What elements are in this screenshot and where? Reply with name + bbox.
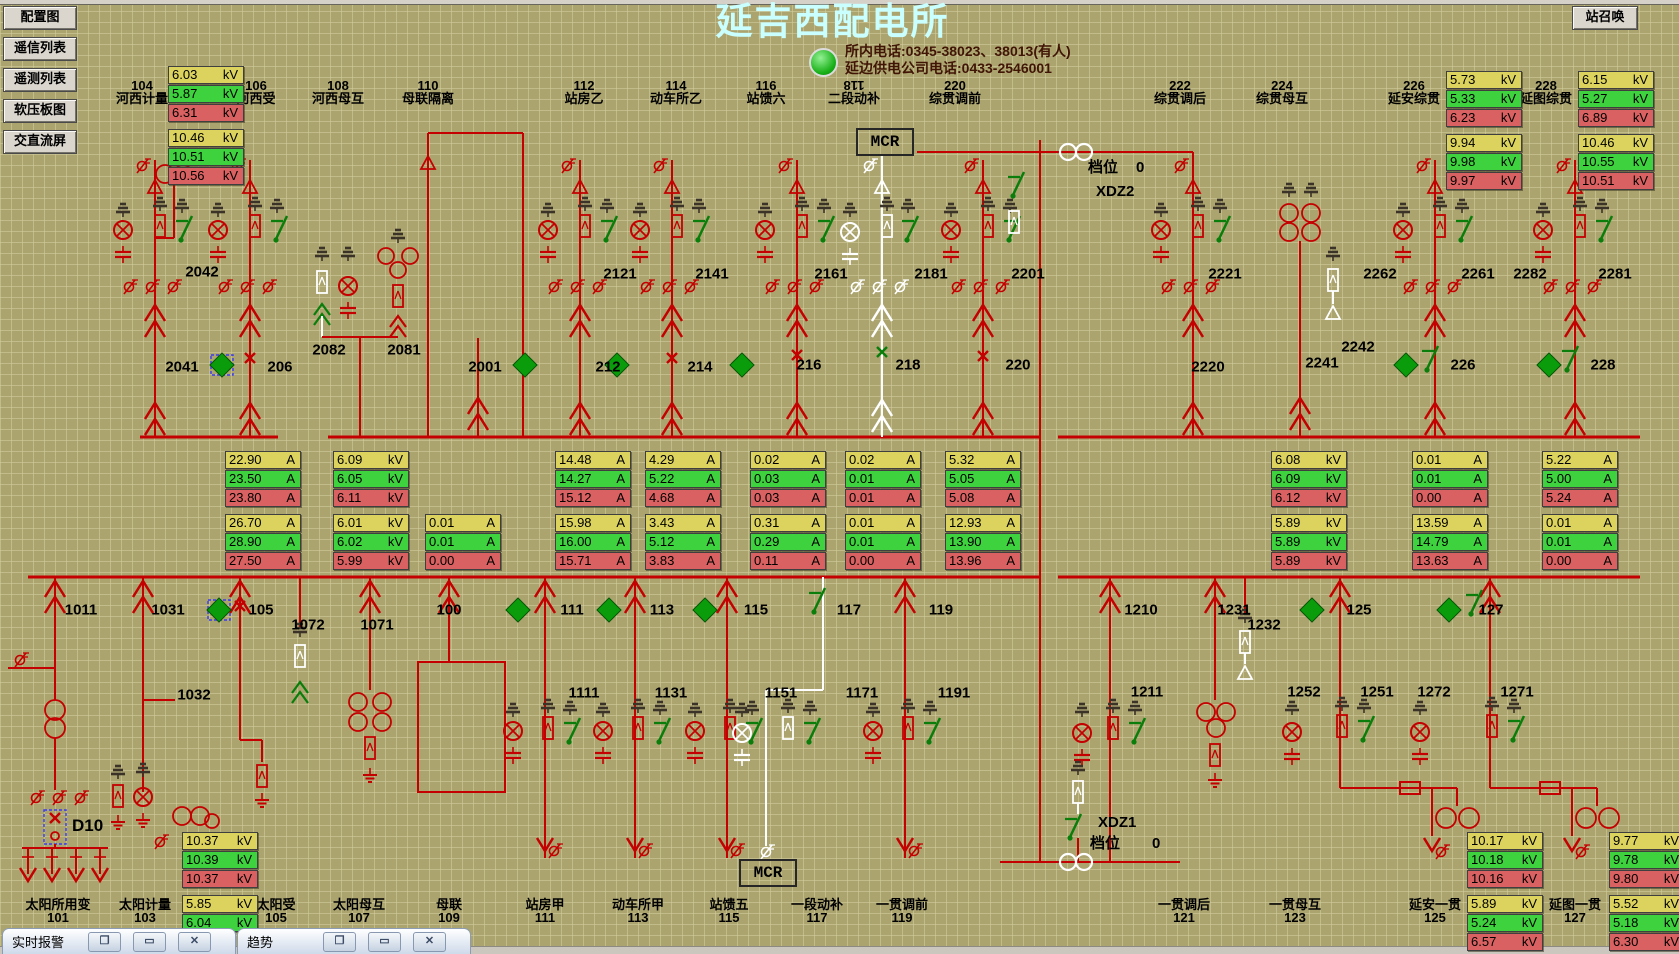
meter-value: 23.50 (229, 471, 262, 487)
bay-id: 119 (847, 911, 957, 924)
meter-value: 5.24 (1546, 490, 1571, 506)
taskbar-window-trend[interactable]: 趋势❐▭✕ (237, 928, 471, 954)
meter-unit: kV (1326, 490, 1341, 506)
meter-value: 5.00 (1546, 471, 1571, 487)
meter-box: 26.70A (225, 514, 301, 532)
meter-value: 4.68 (649, 490, 674, 506)
meter-box: 6.23kV (1446, 109, 1522, 127)
restore-icon[interactable]: ❐ (88, 932, 121, 952)
meter-box: 6.09kV (1271, 470, 1347, 488)
meter-box: 10.51kV (1578, 172, 1654, 190)
meter-value: 15.71 (559, 553, 592, 569)
meter-value: 14.79 (1416, 534, 1449, 550)
meter-unit: A (616, 452, 625, 468)
switch-label-2220: 2220 (1191, 360, 1224, 375)
meter-value: 5.22 (1546, 452, 1571, 468)
meter-value: 0.01 (1546, 515, 1571, 531)
bay-name: 综贯调前 (900, 92, 1010, 105)
bay-label-121: 一贯调后121 (1129, 898, 1239, 924)
selection-box (44, 810, 66, 844)
bay-label-220: 220综贯调前 (900, 79, 1010, 105)
meter-box: 5.05A (945, 470, 1021, 488)
meter-unit: kV (1522, 852, 1537, 868)
bay-name: 综贯母互 (1227, 92, 1337, 105)
scada-main-screen: 配置图遥信列表遥测列表软压板图交直流屏 延吉西配电所 所内电话:0345-380… (0, 0, 1679, 954)
meter-unit: A (1473, 452, 1482, 468)
status-diamond-icon[interactable] (1300, 598, 1324, 622)
meter-value: 13.96 (949, 553, 982, 569)
meter-unit: A (706, 534, 715, 550)
meter-unit: A (906, 452, 915, 468)
switch-label-2181: 2181 (914, 267, 947, 282)
meter-value: 15.98 (559, 515, 592, 531)
switch-label-226: 226 (1450, 358, 1475, 373)
switch-label-2242: 2242 (1341, 340, 1374, 355)
meter-unit: kV (1664, 896, 1679, 912)
meter-value: 27.50 (229, 553, 262, 569)
config-diagram-button[interactable]: 配置图 (3, 6, 77, 30)
meter-unit: kV (237, 896, 252, 912)
switch-label-1252: 1252 (1287, 685, 1320, 700)
meter-unit: A (1473, 490, 1482, 506)
meter-box: 5.89kV (1271, 514, 1347, 532)
meter-box: 6.05kV (333, 470, 409, 488)
bay-id: 118 (799, 79, 909, 92)
status-diamond-icon[interactable] (513, 353, 537, 377)
meter-value: 23.80 (229, 490, 262, 506)
meter-value: 6.57 (1471, 934, 1496, 950)
meter-box: 5.85kV (182, 895, 258, 913)
meter-box: 13.63A (1412, 552, 1488, 570)
meter-box: 10.55kV (1578, 153, 1654, 171)
meter-unit: A (1473, 553, 1482, 569)
bay-label-118: 118二段动补 (799, 79, 909, 105)
bay-id: 121 (1129, 911, 1239, 924)
bay-id: 109 (394, 911, 504, 924)
meter-unit: kV (223, 105, 238, 121)
bay-label-222: 222综贯调后 (1125, 79, 1235, 105)
meter-value: 10.46 (1582, 135, 1615, 151)
ac-dc-screen-button[interactable]: 交直流屏 (3, 130, 77, 154)
meter-unit: A (1473, 515, 1482, 531)
meter-box: 10.37kV (182, 870, 258, 888)
meter-value: 5.99 (337, 553, 362, 569)
meter-box: 6.08kV (1271, 451, 1347, 469)
meter-box: 9.97kV (1446, 172, 1522, 190)
meter-unit: A (486, 553, 495, 569)
status-diamond-icon[interactable] (207, 598, 231, 622)
meter-box: 0.29A (750, 533, 826, 551)
meter-unit: kV (237, 833, 252, 849)
meter-value: 0.01 (1416, 452, 1441, 468)
meter-value: 6.08 (1275, 452, 1300, 468)
xdz1-tap-label: 档位 (1090, 836, 1120, 851)
meter-unit: A (616, 534, 625, 550)
switch-label-1071: 1071 (360, 618, 393, 633)
meter-value: 0.01 (849, 490, 874, 506)
meter-unit: kV (388, 553, 403, 569)
switch-label-220: 220 (1005, 358, 1030, 373)
meter-value: 6.03 (172, 67, 197, 83)
minimize-icon[interactable]: ▭ (133, 932, 166, 952)
meter-unit: kV (1326, 452, 1341, 468)
meter-box: 0.02A (845, 451, 921, 469)
meter-box: 10.46kV (168, 129, 244, 147)
meter-box: 0.31A (750, 514, 826, 532)
meter-box: 9.80kV (1609, 870, 1679, 888)
meter-box: 0.01A (1542, 533, 1618, 551)
meter-box: 6.12kV (1271, 489, 1347, 507)
xdz2-tap-label: 档位 (1088, 160, 1118, 175)
meter-unit: A (1006, 490, 1015, 506)
meter-value: 0.03 (754, 490, 779, 506)
meter-value: 0.29 (754, 534, 779, 550)
meter-box: 0.00A (425, 552, 501, 570)
meter-unit: A (286, 515, 295, 531)
status-diamond-icon[interactable] (210, 353, 234, 377)
meter-box: 12.93A (945, 514, 1021, 532)
meter-unit: A (1603, 534, 1612, 550)
meter-value: 0.00 (429, 553, 454, 569)
meter-unit: kV (1633, 91, 1648, 107)
meter-unit: A (286, 452, 295, 468)
switch-label-2121: 2121 (603, 267, 636, 282)
meter-unit: A (1473, 534, 1482, 550)
meter-box: 5.27kV (1578, 90, 1654, 108)
meter-box: 10.46kV (1578, 134, 1654, 152)
meter-unit: A (906, 553, 915, 569)
meter-value: 0.00 (849, 553, 874, 569)
meter-box: 15.71A (555, 552, 631, 570)
switch-label-218: 218 (895, 358, 920, 373)
d10-label: D10 (72, 818, 103, 833)
xdz2-label: XDZ2 (1096, 184, 1134, 199)
switch-label-1111: 1111 (569, 686, 600, 701)
meter-value: 6.11 (337, 490, 361, 506)
meter-value: 13.59 (1416, 515, 1449, 531)
meter-box: 4.29A (645, 451, 721, 469)
switch-label-1031: 1031 (151, 603, 184, 618)
meter-box: 5.08A (945, 489, 1021, 507)
meter-box: 14.79A (1412, 533, 1488, 551)
switch-label-2081: 2081 (387, 343, 420, 358)
meter-unit: kV (1326, 471, 1341, 487)
meter-unit: A (706, 471, 715, 487)
meter-box: 3.43A (645, 514, 721, 532)
meter-box: 0.01A (1542, 514, 1618, 532)
status-diamond-icon[interactable] (506, 598, 530, 622)
station-call-button[interactable]: 站召唤 (1572, 6, 1638, 30)
bay-id: 123 (1240, 911, 1350, 924)
meter-unit: A (906, 515, 915, 531)
meter-box: 6.03kV (168, 66, 244, 84)
meter-box: 13.90A (945, 533, 1021, 551)
meter-unit: kV (1633, 135, 1648, 151)
meter-unit: A (1603, 490, 1612, 506)
meter-unit: A (1603, 471, 1612, 487)
status-diamond-icon[interactable] (693, 598, 717, 622)
meter-value: 10.16 (1471, 871, 1504, 887)
meter-box: 9.94kV (1446, 134, 1522, 152)
bay-name: 综贯调后 (1125, 92, 1235, 105)
meter-value: 0.01 (849, 471, 874, 487)
meter-box: 9.98kV (1446, 153, 1522, 171)
meter-unit: A (1006, 515, 1015, 531)
meter-box: 10.39kV (182, 851, 258, 869)
meter-box: 16.00A (555, 533, 631, 551)
switch-label-111: 111 (560, 603, 583, 618)
meter-value: 10.51 (1582, 173, 1615, 189)
meter-value: 10.37 (186, 833, 219, 849)
meter-unit: A (616, 553, 625, 569)
meter-unit: kV (223, 67, 238, 83)
meter-unit: kV (1664, 915, 1679, 931)
meter-unit: A (486, 515, 495, 531)
meter-value: 6.05 (337, 471, 362, 487)
meter-box: 0.01A (425, 514, 501, 532)
meter-value: 4.29 (649, 452, 674, 468)
telemetry-list-button[interactable]: 遥测列表 (3, 68, 77, 92)
switch-label-1171: 1171 (846, 686, 879, 701)
meter-unit: A (616, 471, 625, 487)
meter-box: 6.57kV (1467, 933, 1543, 951)
status-diamond-icon[interactable] (1537, 353, 1561, 377)
xdz1-tap-value: 0 (1152, 836, 1160, 851)
meter-value: 0.02 (754, 452, 779, 468)
meter-unit: A (811, 490, 820, 506)
meter-unit: A (706, 490, 715, 506)
bay-label-224: 224综贯母互 (1227, 79, 1337, 105)
switch-label-1191: 1191 (938, 686, 971, 701)
switch-label-1271: 1271 (1500, 685, 1533, 700)
meter-box: 5.24kV (1467, 914, 1543, 932)
meter-box: 6.89kV (1578, 109, 1654, 127)
meter-unit: kV (1501, 173, 1516, 189)
meter-box: 0.01A (425, 533, 501, 551)
meter-value: 9.94 (1450, 135, 1475, 151)
meter-value: 9.80 (1613, 871, 1638, 887)
meter-box: 5.12A (645, 533, 721, 551)
meter-value: 10.18 (1471, 852, 1504, 868)
meter-value: 9.97 (1450, 173, 1475, 189)
switch-label-125: 125 (1346, 603, 1371, 618)
meter-value: 10.37 (186, 871, 219, 887)
meter-value: 10.17 (1471, 833, 1504, 849)
meter-unit: A (1006, 452, 1015, 468)
meter-unit: kV (1326, 553, 1341, 569)
switch-label-2001: 2001 (468, 360, 501, 375)
meter-unit: kV (1326, 515, 1341, 531)
meter-value: 3.83 (649, 553, 674, 569)
meter-box: 0.00A (1542, 552, 1618, 570)
switch-label-2241: 2241 (1305, 356, 1338, 371)
switch-label-2282: 2282 (1513, 267, 1546, 282)
meter-value: 6.89 (1582, 110, 1607, 126)
switch-label-100: 100 (436, 603, 461, 618)
meter-unit: A (811, 515, 820, 531)
meter-value: 26.70 (229, 515, 262, 531)
meter-box: 5.89kV (1271, 533, 1347, 551)
meter-unit: kV (223, 130, 238, 146)
meter-unit: A (906, 471, 915, 487)
restore-icon[interactable]: ❐ (323, 932, 356, 952)
meter-value: 10.56 (172, 168, 205, 184)
switch-label-2141: 2141 (695, 267, 728, 282)
meter-value: 5.89 (1275, 553, 1300, 569)
meter-box: 15.98A (555, 514, 631, 532)
meter-value: 12.93 (949, 515, 982, 531)
meter-unit: kV (388, 534, 403, 550)
meter-unit: kV (1522, 833, 1537, 849)
meter-box: 14.48A (555, 451, 631, 469)
meter-value: 0.31 (754, 515, 779, 531)
meter-value: 0.01 (1546, 534, 1571, 550)
meter-unit: kV (1522, 915, 1537, 931)
meter-box: 5.73kV (1446, 71, 1522, 89)
meter-unit: kV (223, 149, 238, 165)
meter-value: 6.09 (337, 452, 362, 468)
switch-label-1210: 1210 (1124, 603, 1157, 618)
meter-box: 0.02A (750, 451, 826, 469)
meter-value: 10.55 (1582, 154, 1615, 170)
meter-box: 9.78kV (1609, 851, 1679, 869)
mcr-box-bottom: MCR (739, 859, 797, 887)
switch-label-1251: 1251 (1360, 685, 1393, 700)
meter-box: 6.30kV (1609, 933, 1679, 951)
meter-unit: A (706, 553, 715, 569)
meter-box: 27.50A (225, 552, 301, 570)
page-title: 延吉西配电所 (660, 4, 1005, 42)
meter-box: 5.18kV (1609, 914, 1679, 932)
meter-value: 5.87 (172, 86, 197, 102)
close-icon[interactable]: ✕ (178, 932, 211, 952)
switch-label-212: 212 (595, 360, 620, 375)
switch-label-1272: 1272 (1417, 685, 1450, 700)
bay-label-110: 110母联隔离 (373, 79, 483, 105)
meter-unit: kV (388, 490, 403, 506)
meter-unit: kV (1501, 135, 1516, 151)
meter-value: 28.90 (229, 534, 262, 550)
meter-unit: kV (388, 515, 403, 531)
switch-label-2281: 2281 (1598, 267, 1631, 282)
telesignal-list-button[interactable]: 遥信列表 (3, 37, 77, 61)
bay-name: 二段动补 (799, 92, 909, 105)
meter-value: 5.52 (1613, 896, 1638, 912)
meter-box: 9.77kV (1609, 832, 1679, 850)
switch-label-216: 216 (796, 358, 821, 373)
meter-value: 5.32 (949, 452, 974, 468)
switch-label-1231: 1231 (1217, 603, 1250, 618)
meter-box: 4.68A (645, 489, 721, 507)
bay-label-109: 母联109 (394, 898, 504, 924)
meter-value: 5.73 (1450, 72, 1475, 88)
close-icon[interactable]: ✕ (413, 932, 446, 952)
meter-box: 22.90A (225, 451, 301, 469)
switch-label-1131: 1131 (655, 686, 688, 701)
meter-box: 5.99kV (333, 552, 409, 570)
meter-box: 5.33kV (1446, 90, 1522, 108)
taskbar-window-realtime-alarm[interactable]: 实时报警❐▭✕ (2, 928, 236, 954)
meter-value: 0.02 (849, 452, 874, 468)
meter-box: 0.00A (1412, 489, 1488, 507)
mcr-box-top: MCR (856, 128, 914, 156)
meter-value: 14.48 (559, 452, 592, 468)
switch-label-105: 105 (248, 603, 273, 618)
meter-unit: kV (1522, 871, 1537, 887)
meter-box: 6.01kV (333, 514, 409, 532)
meter-box: 5.89kV (1467, 895, 1543, 913)
status-diamond-icon[interactable] (730, 353, 754, 377)
switch-label-1151: 1151 (765, 686, 798, 701)
meter-box: 5.22A (1542, 451, 1618, 469)
switch-label-206: 206 (267, 360, 292, 375)
minimize-icon[interactable]: ▭ (368, 932, 401, 952)
meter-box: 6.09kV (333, 451, 409, 469)
meter-unit: kV (1633, 110, 1648, 126)
status-diamond-icon[interactable] (1437, 598, 1461, 622)
switch-label-214: 214 (687, 360, 712, 375)
meter-box: 0.01A (845, 514, 921, 532)
meter-unit: A (811, 471, 820, 487)
meter-value: 22.90 (229, 452, 262, 468)
meter-box: 15.12A (555, 489, 631, 507)
phone-info-line2: 延边供电公司电话:0433-2546001 (845, 61, 1052, 76)
meter-unit: kV (1326, 534, 1341, 550)
phone-info-line1: 所内电话:0345-38023、38013(有人) (845, 44, 1071, 59)
meter-value: 5.24 (1471, 915, 1496, 931)
meter-unit: kV (1664, 934, 1679, 950)
meter-value: 15.12 (559, 490, 592, 506)
soft-panel-button[interactable]: 软压板图 (3, 99, 77, 123)
meter-value: 13.63 (1416, 553, 1449, 569)
meter-unit: kV (1501, 91, 1516, 107)
meter-box: 5.32A (945, 451, 1021, 469)
meter-box: 23.80A (225, 489, 301, 507)
status-diamond-icon[interactable] (597, 598, 621, 622)
switch-label-2201: 2201 (1011, 267, 1044, 282)
meter-box: 5.52kV (1609, 895, 1679, 913)
meter-box: 10.56kV (168, 167, 244, 185)
taskbar-window-title: 趋势 (247, 936, 311, 949)
meter-box: 6.31kV (168, 104, 244, 122)
switch-label-1211: 1211 (1131, 685, 1164, 700)
status-diamond-icon[interactable] (1394, 353, 1418, 377)
meter-value: 5.89 (1275, 515, 1300, 531)
meter-value: 5.22 (649, 471, 674, 487)
meter-unit: A (286, 471, 295, 487)
meter-value: 6.01 (337, 515, 362, 531)
meter-box: 28.90A (225, 533, 301, 551)
meter-unit: A (1603, 452, 1612, 468)
meter-unit: A (1006, 471, 1015, 487)
switch-label-2261: 2261 (1461, 267, 1494, 282)
meter-unit: kV (1522, 934, 1537, 950)
xdz2-tap-value: 0 (1136, 160, 1144, 175)
meter-box: 13.96A (945, 552, 1021, 570)
meter-value: 5.89 (1275, 534, 1300, 550)
meter-unit: kV (1633, 173, 1648, 189)
meter-unit: kV (223, 86, 238, 102)
meter-value: 0.01 (1416, 471, 1441, 487)
meter-value: 9.98 (1450, 154, 1475, 170)
meter-box: 0.01A (845, 533, 921, 551)
meter-box: 0.01A (845, 489, 921, 507)
meter-box: 3.83A (645, 552, 721, 570)
meter-value: 0.11 (754, 553, 778, 569)
meter-box: 10.37kV (182, 832, 258, 850)
meter-box: 0.11A (750, 552, 826, 570)
meter-unit: A (286, 490, 295, 506)
